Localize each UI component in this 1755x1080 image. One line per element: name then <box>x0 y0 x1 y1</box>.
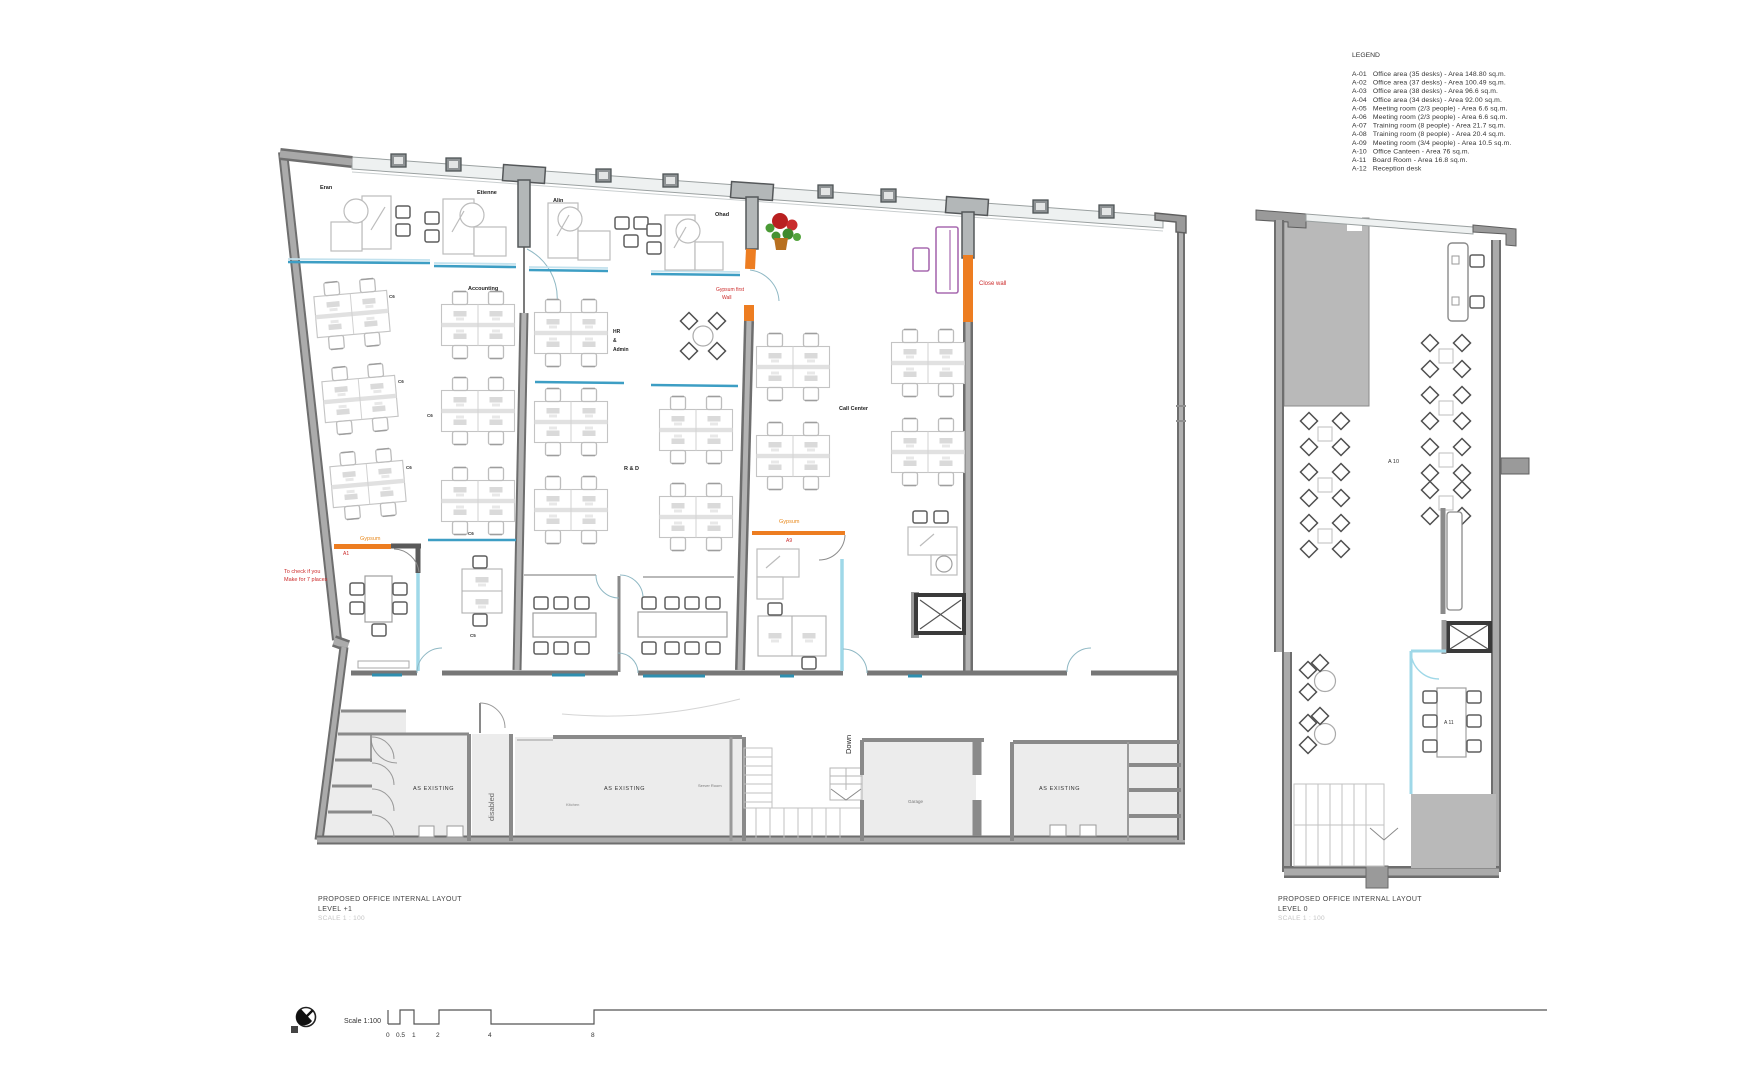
svg-text:SCALE 1 : 100: SCALE 1 : 100 <box>1278 915 1325 922</box>
svg-text:A1: A1 <box>343 551 349 557</box>
svg-text:Close wall: Close wall <box>979 281 1006 287</box>
svg-text:Admin: Admin <box>613 347 629 353</box>
svg-text:Scale 1:100: Scale 1:100 <box>344 1018 381 1025</box>
svg-text:Kitchen: Kitchen <box>566 802 579 807</box>
svg-text:Gypsum first: Gypsum first <box>716 287 745 293</box>
svg-text:C6: C6 <box>406 465 412 470</box>
svg-text:A-03 Office area (38 desks): A-03 Office area (38 desks) - Area 96.6 … <box>1352 88 1498 95</box>
svg-text:A-01 Office area (35 desks): A-01 Office area (35 desks) - Area 148.8… <box>1352 71 1506 78</box>
svg-text:Alin: Alin <box>553 198 564 204</box>
svg-text:4: 4 <box>488 1032 492 1039</box>
svg-text:A-04 Office area (34 desks): A-04 Office area (34 desks) - Area 92.00… <box>1352 97 1502 104</box>
svg-text:C6: C6 <box>427 413 433 418</box>
svg-text:LEVEL 0: LEVEL 0 <box>1278 906 1308 913</box>
svg-text:AS EXISTING: AS EXISTING <box>413 786 454 792</box>
svg-text:PROPOSED OFFICE INTERNAL LAYOU: PROPOSED OFFICE INTERNAL LAYOUT <box>318 896 462 903</box>
svg-text:A-09 Meeting room (3/4 peopl: A-09 Meeting room (3/4 people) - Area 10… <box>1352 140 1511 147</box>
svg-text:Wall: Wall <box>722 295 732 301</box>
svg-text:&: & <box>613 338 617 344</box>
svg-text:Make for 7 places: Make for 7 places <box>284 577 328 583</box>
svg-text:A-08 Training room (8 people: A-08 Training room (8 people) - Area 20.… <box>1352 131 1506 138</box>
svg-text:AS EXISTING: AS EXISTING <box>604 786 645 792</box>
svg-text:SCALE 1 : 100: SCALE 1 : 100 <box>318 915 365 922</box>
svg-text:C6: C6 <box>389 294 395 299</box>
svg-text:A 11: A 11 <box>1444 720 1454 726</box>
svg-text:Gypsum: Gypsum <box>360 536 381 542</box>
svg-text:Gypsum: Gypsum <box>779 519 800 525</box>
svg-text:LEGEND: LEGEND <box>1352 52 1380 59</box>
svg-text:A-07 Training room (8 people: A-07 Training room (8 people) - Area 21.… <box>1352 123 1506 130</box>
svg-text:1: 1 <box>412 1032 416 1039</box>
svg-text:A 10: A 10 <box>1388 459 1399 465</box>
svg-text:A9: A9 <box>786 538 792 544</box>
svg-text:C6: C6 <box>468 531 474 536</box>
svg-text:Eran: Eran <box>320 185 333 191</box>
svg-text:2: 2 <box>436 1032 440 1039</box>
svg-text:Call Center: Call Center <box>839 406 869 412</box>
svg-text:To check if you: To check if you <box>284 569 320 575</box>
svg-text:AS EXISTING: AS EXISTING <box>1039 786 1080 792</box>
svg-text:C5: C5 <box>470 633 476 638</box>
svg-text:Etienne: Etienne <box>477 190 497 196</box>
svg-text:PROPOSED OFFICE INTERNAL LAYOU: PROPOSED OFFICE INTERNAL LAYOUT <box>1278 896 1422 903</box>
svg-text:0.5: 0.5 <box>396 1032 405 1039</box>
svg-text:A-02 Office area (37 desks): A-02 Office area (37 desks) - Area 100.4… <box>1352 80 1506 87</box>
svg-text:Accounting: Accounting <box>468 286 498 292</box>
svg-text:A-05 Meeting room (2/3 peopl: A-05 Meeting room (2/3 people) - Area 6.… <box>1352 105 1507 112</box>
svg-text:Ohad: Ohad <box>715 212 729 218</box>
svg-text:Garage: Garage <box>908 799 924 804</box>
svg-text:0: 0 <box>386 1032 390 1039</box>
svg-text:A-06 Meeting room (2/3 peopl: A-06 Meeting room (2/3 people) - Area 6.… <box>1352 114 1507 121</box>
svg-text:A-10 Office Canteen - Area 7: A-10 Office Canteen - Area 76 sq.m. <box>1352 148 1470 155</box>
svg-text:R & D: R & D <box>624 466 639 472</box>
svg-text:8: 8 <box>591 1032 595 1039</box>
svg-text:LEVEL +1: LEVEL +1 <box>318 906 352 913</box>
svg-text:Server Room: Server Room <box>698 783 722 788</box>
svg-text:Down: Down <box>844 735 853 754</box>
svg-text:disabled: disabled <box>487 793 496 821</box>
svg-text:C6: C6 <box>398 379 404 384</box>
svg-text:A-12 Reception desk: A-12 Reception desk <box>1352 166 1422 173</box>
svg-text:HR: HR <box>613 329 621 335</box>
svg-text:A-11 Board Room - Area 16.8: A-11 Board Room - Area 16.8 sq.m. <box>1352 157 1468 164</box>
